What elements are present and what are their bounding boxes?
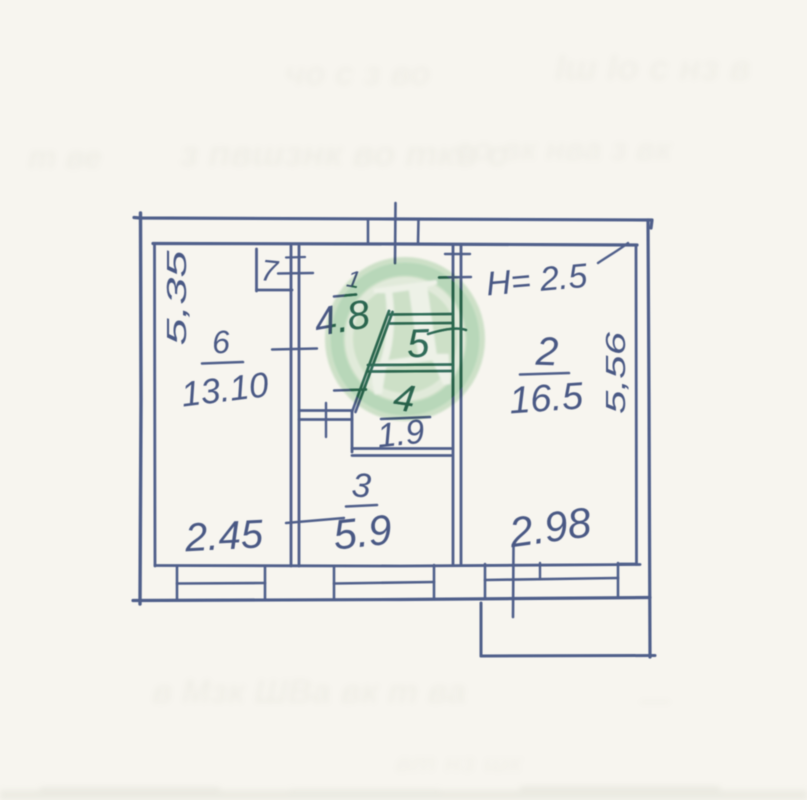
svg-text:т ве: т ве <box>28 139 102 175</box>
svg-text:вт нз шк: вт нз шк <box>395 747 524 778</box>
svg-text:со вк нва з вк: со вк нва з вк <box>455 131 673 167</box>
svg-text:в Мзк ШВа вк т ва: в Мзк ШВа вк т ва <box>152 673 466 711</box>
svg-text:—: — <box>639 684 671 717</box>
svg-text:чо с з во: чо с з во <box>285 55 431 93</box>
svg-text:Іш Іо с нз в: Іш Іо с нз в <box>555 47 751 88</box>
